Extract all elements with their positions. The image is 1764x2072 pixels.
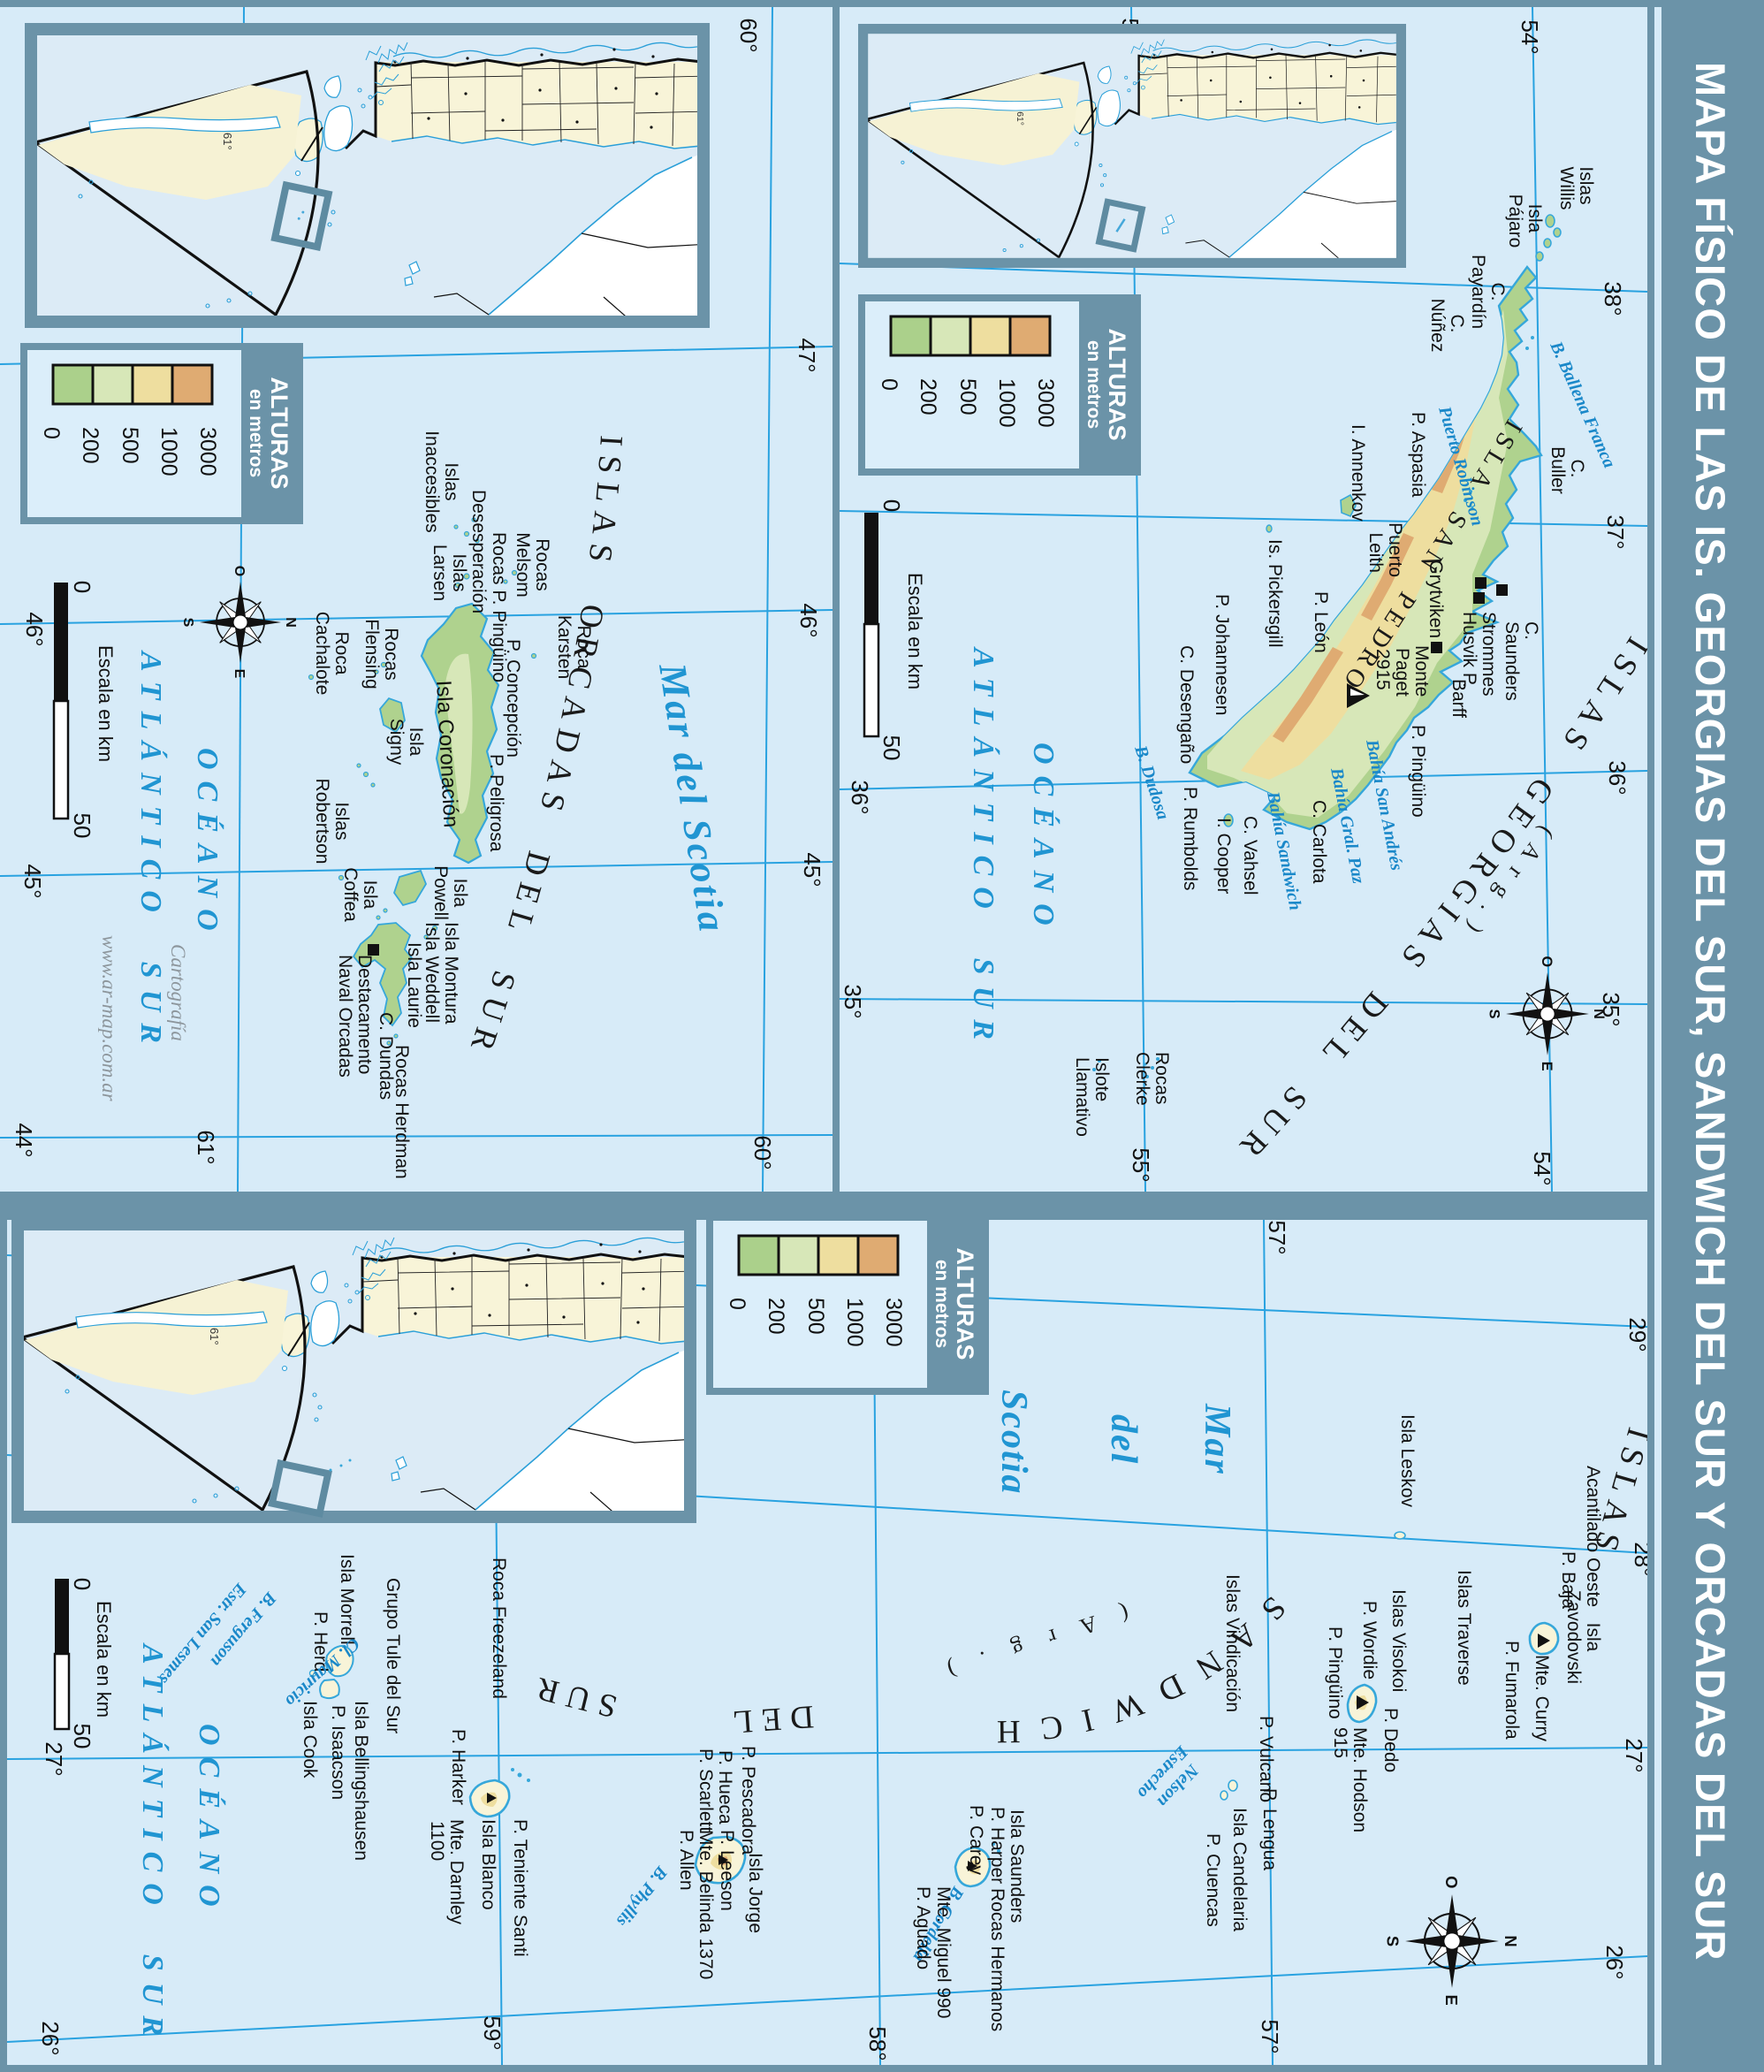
svg-text:P. Pingüino: P. Pingüino xyxy=(1408,725,1428,818)
svg-text:Paget: Paget xyxy=(1392,648,1412,697)
svg-text:57°: 57° xyxy=(1257,2019,1283,2053)
svg-text:www.ar-map.com.ar: www.ar-map.com.ar xyxy=(98,935,120,1102)
svg-text:57°: 57° xyxy=(1264,1220,1290,1254)
svg-text:P. Fumarola: P. Fumarola xyxy=(1502,1641,1522,1740)
svg-text:P. Leeson: P. Leeson xyxy=(717,1830,737,1911)
svg-text:P. Allen: P. Allen xyxy=(676,1830,696,1891)
svg-text:50: 50 xyxy=(69,813,95,839)
svg-text:Isla Saunders: Isla Saunders xyxy=(1007,1809,1027,1923)
svg-text:0: 0 xyxy=(878,499,905,512)
svg-text:50: 50 xyxy=(69,1724,95,1749)
svg-text:Flensing: Flensing xyxy=(361,619,382,689)
svg-text:C.: C. xyxy=(1521,621,1541,640)
svg-text:MAPA FÍSICO DE LAS IS. GEORGIA: MAPA FÍSICO DE LAS IS. GEORGIAS DEL SUR,… xyxy=(1687,62,1734,1962)
svg-text:0: 0 xyxy=(69,581,95,593)
svg-text:Inaccesibles: Inaccesibles xyxy=(422,430,442,533)
svg-text:Rocas Hermanos: Rocas Hermanos xyxy=(987,1888,1007,2031)
svg-text:915: 915 xyxy=(1330,1727,1350,1758)
svg-text:Islas Visokoi: Islas Visokoi xyxy=(1388,1589,1409,1692)
svg-text:58°: 58° xyxy=(864,2026,891,2061)
svg-text:Larsen: Larsen xyxy=(430,545,450,601)
svg-text:Mte. Belinda 1370: Mte. Belinda 1370 xyxy=(696,1830,716,1979)
svg-text:P. Scarlett: P. Scarlett xyxy=(696,1748,716,1832)
svg-text:Scotia: Scotia xyxy=(993,1390,1034,1495)
svg-text:Puerto: Puerto xyxy=(1385,522,1405,577)
svg-text:DEL: DEL xyxy=(723,1698,816,1741)
svg-text:Isla Morrell: Isla Morrell xyxy=(337,1554,357,1645)
svg-text:36°: 36° xyxy=(847,780,873,814)
svg-text:Isla Blanco: Isla Blanco xyxy=(478,1819,498,1910)
svg-text:Grupo Tule del Sur: Grupo Tule del Sur xyxy=(383,1578,403,1733)
svg-text:P. Peligrosa: P. Peligrosa xyxy=(486,754,506,852)
svg-text:P. Aguado: P. Aguado xyxy=(913,1886,933,1969)
svg-text:P. Wordie: P. Wordie xyxy=(1359,1601,1380,1680)
svg-text:ATLÁNTICO SUR: ATLÁNTICO SUR xyxy=(136,1642,169,2047)
svg-text:Isla Montura: Isla Montura xyxy=(441,922,461,1025)
svg-text:P. Hueca: P. Hueca xyxy=(715,1750,735,1824)
svg-text:Rocas: Rocas xyxy=(381,628,401,681)
svg-text:Escala en km: Escala en km xyxy=(93,1601,115,1718)
svg-text:Buller: Buller xyxy=(1547,446,1568,494)
svg-text:Coffea: Coffea xyxy=(340,867,361,922)
svg-text:Cachalote: Cachalote xyxy=(312,612,332,696)
svg-text:P. Harper: P. Harper xyxy=(987,1807,1007,1884)
svg-text:Isla Bellingshausen: Isla Bellingshausen xyxy=(351,1701,371,1861)
svg-text:Husvik P.: Husvik P. xyxy=(1459,612,1479,688)
svg-text:Islas: Islas xyxy=(441,462,461,500)
svg-text:60°: 60° xyxy=(749,1135,776,1169)
svg-text:27°: 27° xyxy=(1621,1738,1647,1772)
svg-text:Roca Freezeland: Roca Freezeland xyxy=(489,1558,509,1699)
svg-text:P. Harker: P. Harker xyxy=(448,1729,468,1805)
svg-text:37°: 37° xyxy=(1602,514,1629,549)
svg-text:P. León: P. León xyxy=(1311,591,1331,653)
svg-text:Mte. Hodson: Mte. Hodson xyxy=(1350,1727,1370,1832)
svg-text:Isla: Isla xyxy=(360,880,380,910)
svg-text:Melsom: Melsom xyxy=(513,532,533,598)
svg-text:Destacamento: Destacamento xyxy=(354,955,375,1074)
svg-text:Cartografía: Cartografía xyxy=(167,944,189,1041)
svg-text:Roca: Roca xyxy=(574,625,594,668)
svg-text:Islas: Islas xyxy=(331,802,352,840)
svg-text:OCÉANO: OCÉANO xyxy=(191,748,224,942)
svg-text:Islas: Islas xyxy=(1576,166,1596,204)
svg-text:Roca: Roca xyxy=(331,631,352,674)
svg-text:27°: 27° xyxy=(41,1741,67,1776)
svg-text:P. Dedo: P. Dedo xyxy=(1380,1708,1401,1772)
svg-text:Isla Cook: Isla Cook xyxy=(300,1701,320,1779)
svg-text:55°: 55° xyxy=(1128,1147,1154,1182)
svg-text:44°: 44° xyxy=(11,1123,37,1157)
svg-text:26°: 26° xyxy=(1601,1945,1628,1979)
svg-text:P. Teniente Santi: P. Teniente Santi xyxy=(510,1819,530,1957)
svg-text:I. Cooper: I. Cooper xyxy=(1213,818,1234,894)
svg-text:ATLÁNTICO SUR: ATLÁNTICO SUR xyxy=(134,650,167,1055)
svg-text:Saunders: Saunders xyxy=(1502,621,1522,701)
svg-text:Rocas: Rocas xyxy=(1152,1052,1172,1105)
svg-text:Mte. Darnley: Mte. Darnley xyxy=(446,1819,467,1925)
svg-text:Rocas Herdman: Rocas Herdman xyxy=(392,1045,412,1179)
svg-text:ATLÁNTICO SUR: ATLÁNTICO SUR xyxy=(967,646,1000,1051)
svg-text:Mte. Miguel 990: Mte. Miguel 990 xyxy=(933,1886,954,2018)
svg-text:P. Rumbolds: P. Rumbolds xyxy=(1180,787,1200,891)
svg-text:2915: 2915 xyxy=(1372,649,1393,690)
svg-text:60°: 60° xyxy=(735,18,762,52)
svg-text:P. Baja: P. Baja xyxy=(1558,1551,1578,1609)
svg-text:Isla Candelaria: Isla Candelaria xyxy=(1229,1808,1250,1931)
svg-text:Isla Laurie: Isla Laurie xyxy=(404,942,424,1028)
svg-text:C.: C. xyxy=(1447,315,1467,333)
svg-text:0: 0 xyxy=(69,1578,95,1590)
svg-text:59°: 59° xyxy=(479,2015,506,2050)
svg-text:36°: 36° xyxy=(1604,760,1631,795)
svg-text:35°: 35° xyxy=(840,984,866,1018)
svg-text:Clerke: Clerke xyxy=(1132,1052,1152,1106)
svg-text:Mte. Curry: Mte. Curry xyxy=(1532,1655,1552,1742)
svg-text:45°: 45° xyxy=(19,864,46,898)
svg-text:Monte: Monte xyxy=(1411,645,1432,697)
svg-text:Robertson: Robertson xyxy=(312,779,332,865)
svg-text:Islas Vindicación: Islas Vindicación xyxy=(1222,1574,1243,1712)
svg-text:38°: 38° xyxy=(1600,281,1626,316)
svg-text:Powell: Powell xyxy=(430,865,451,920)
svg-text:P. Johannesen: P. Johannesen xyxy=(1212,594,1232,715)
svg-text:Karsten: Karsten xyxy=(554,615,574,679)
svg-text:C.: C. xyxy=(1567,460,1587,478)
svg-text:Barff: Barff xyxy=(1448,679,1469,718)
svg-text:61°: 61° xyxy=(193,1130,219,1164)
svg-text:Islas Traverse: Islas Traverse xyxy=(1454,1570,1474,1686)
svg-text:Isla Leskov: Isla Leskov xyxy=(1397,1414,1418,1508)
svg-text:Mar: Mar xyxy=(1197,1403,1237,1475)
svg-text:Acantilado Oeste: Acantilado Oeste xyxy=(1583,1466,1603,1607)
svg-text:29°: 29° xyxy=(1624,1317,1651,1352)
svg-text:P. Isaacson: P. Isaacson xyxy=(328,1705,348,1800)
svg-text:50: 50 xyxy=(878,735,905,761)
svg-text:Strommes: Strommes xyxy=(1479,612,1499,697)
svg-text:Signy: Signy xyxy=(386,719,407,766)
svg-text:Escala en km: Escala en km xyxy=(95,645,117,762)
svg-text:P. Pingüino: P. Pingüino xyxy=(1325,1626,1345,1719)
svg-text:Isla: Isla xyxy=(450,879,470,908)
svg-text:P. Concepción: P. Concepción xyxy=(503,639,523,758)
svg-text:P. Pescadora: P. Pescadora xyxy=(738,1746,758,1855)
svg-text:P. Carey: P. Carey xyxy=(966,1805,986,1875)
svg-text:Pájaro: Pájaro xyxy=(1505,194,1525,248)
svg-text:Rocas: Rocas xyxy=(532,538,552,591)
svg-text:Isla: Isla xyxy=(1524,204,1545,233)
svg-text:Payardín: Payardín xyxy=(1468,255,1488,329)
svg-text:P. Aspasia: P. Aspasia xyxy=(1408,412,1428,498)
svg-text:54°: 54° xyxy=(1529,1151,1555,1185)
svg-text:Llamativo: Llamativo xyxy=(1072,1057,1092,1137)
svg-text:del: del xyxy=(1103,1414,1144,1465)
svg-text:Leith: Leith xyxy=(1365,532,1386,573)
svg-text:Isla: Isla xyxy=(406,727,426,757)
svg-text:46°: 46° xyxy=(795,603,822,637)
svg-text:I. Annenkov: I. Annenkov xyxy=(1348,424,1368,522)
svg-text:Islote: Islote xyxy=(1091,1057,1112,1101)
svg-text:Desesperación: Desesperación xyxy=(468,490,489,613)
svg-text:46°: 46° xyxy=(21,612,48,646)
svg-text:47°: 47° xyxy=(794,338,820,372)
svg-text:OCÉANO: OCÉANO xyxy=(193,1724,225,1918)
svg-text:Willis: Willis xyxy=(1556,167,1577,210)
svg-text:Isla Jorge: Isla Jorge xyxy=(745,1853,765,1933)
svg-text:Escala en km: Escala en km xyxy=(904,573,926,689)
svg-text:OCÉANO: OCÉANO xyxy=(1027,743,1060,937)
svg-text:C.: C. xyxy=(1487,283,1508,301)
svg-text:P. Cuencas: P. Cuencas xyxy=(1203,1833,1223,1927)
svg-text:Islas: Islas xyxy=(449,553,469,591)
svg-text:Isla: Isla xyxy=(1583,1623,1603,1652)
svg-text:45°: 45° xyxy=(799,852,825,887)
svg-text:26°: 26° xyxy=(37,2021,64,2055)
svg-text:Núñez: Núñez xyxy=(1427,299,1448,353)
svg-text:C. Desengaño: C. Desengaño xyxy=(1176,645,1197,764)
svg-text:1100: 1100 xyxy=(427,1821,447,1861)
svg-text:Is. Pickersgill: Is. Pickersgill xyxy=(1265,539,1285,648)
svg-text:54°: 54° xyxy=(1517,19,1543,54)
svg-text:C. Vahsel: C. Vahsel xyxy=(1240,816,1260,895)
svg-text:Naval Orcadas: Naval Orcadas xyxy=(335,955,355,1078)
svg-text:Grytviken: Grytviken xyxy=(1426,560,1446,638)
svg-text:P. Lengua: P. Lengua xyxy=(1259,1788,1280,1870)
svg-text:C. Carlota: C. Carlota xyxy=(1309,800,1329,884)
